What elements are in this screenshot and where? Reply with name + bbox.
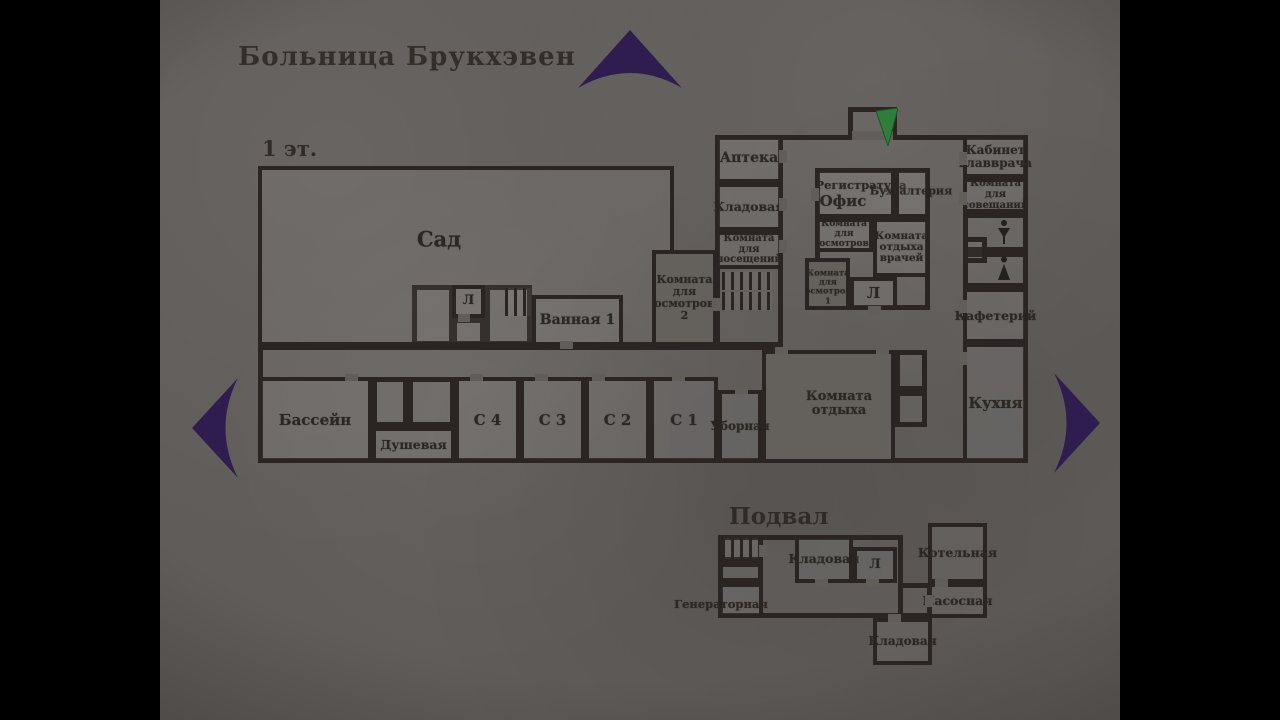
wc-female-icon bbox=[997, 220, 1011, 245]
door-gap bbox=[759, 545, 767, 557]
closet-2 bbox=[895, 391, 927, 427]
shower-closet-1 bbox=[372, 377, 408, 427]
room-meeting-room: Комната для совещаний bbox=[963, 178, 1028, 213]
basement-understair bbox=[718, 562, 763, 583]
room-label-bathroom-1: Ванная 1 bbox=[540, 313, 615, 328]
door-gap bbox=[535, 374, 548, 381]
door-gap bbox=[959, 192, 967, 205]
door-gap bbox=[959, 300, 967, 313]
door-gap bbox=[935, 579, 948, 587]
shower-closet-2 bbox=[408, 377, 455, 427]
door-gap bbox=[868, 306, 881, 314]
door-gap bbox=[592, 374, 605, 381]
door-gap bbox=[458, 314, 470, 322]
room-cafeteria: Кафетерий bbox=[963, 288, 1028, 343]
room-bathroom-1: Ванная 1 bbox=[532, 295, 623, 346]
door-gap bbox=[735, 387, 748, 394]
door-gap bbox=[779, 198, 787, 211]
floating-label: Офис bbox=[820, 192, 867, 210]
room-label-doctors-lounge: Комната отдыха врачей bbox=[875, 231, 928, 265]
stairs-hatching bbox=[722, 292, 772, 310]
closet-1 bbox=[895, 350, 927, 391]
room-label-ward-c4: С 4 bbox=[474, 412, 502, 428]
stairs-hatching bbox=[722, 538, 760, 559]
room-generator-room: Генераторная bbox=[718, 583, 763, 618]
room-label-elevator-2: Л bbox=[867, 285, 880, 301]
room-storeroom-b2: Кладовая bbox=[873, 618, 932, 665]
room-shower: Душевая bbox=[372, 427, 455, 463]
room-doctors-lounge: Комната отдыха врачей bbox=[873, 218, 930, 277]
door-gap bbox=[470, 374, 483, 381]
game-screen: Больница Брукхэвен 1 эт. Подвал СадЛВанн… bbox=[0, 0, 1280, 720]
room-pump-room: Насосная bbox=[928, 583, 987, 618]
room-label-generator-room: Генераторная bbox=[674, 598, 768, 610]
stairs-hatching bbox=[505, 288, 531, 316]
room-label-pump-room: Насосная bbox=[923, 594, 993, 608]
door-gap bbox=[345, 374, 358, 381]
room-label-exam-room-mid: Комната для осмотров bbox=[819, 220, 868, 249]
wc-male-icon bbox=[997, 256, 1011, 281]
room-label-meeting-room: Комната для совещаний bbox=[963, 179, 1029, 211]
room-visiting-room: Комната для посещений bbox=[715, 231, 783, 269]
room-lounge: Комната отдыха bbox=[762, 350, 895, 463]
map-arrow-left[interactable] bbox=[192, 378, 238, 478]
room-ward-c3: С 3 bbox=[520, 377, 585, 463]
room-label-lounge: Комната отдыха bbox=[806, 390, 872, 418]
map-arrow-up[interactable] bbox=[578, 30, 682, 88]
room-head-doctor-office: Кабинет главврача bbox=[963, 135, 1028, 178]
door-gap bbox=[876, 347, 889, 354]
door-gap bbox=[560, 341, 573, 349]
door-gap bbox=[811, 188, 819, 201]
door-gap bbox=[775, 347, 788, 354]
door-gap bbox=[815, 579, 828, 587]
room-boiler-room: Котельная bbox=[928, 523, 987, 583]
door-gap bbox=[959, 152, 967, 165]
wc-niche bbox=[963, 237, 987, 263]
room-storeroom-b1: Кладовая bbox=[795, 535, 853, 583]
room-pharmacy: Аптека bbox=[715, 135, 783, 183]
room-storeroom-1f: Кладовая bbox=[715, 183, 783, 231]
room-label-exam-room-1: Комната для осмотров 1 bbox=[805, 270, 852, 307]
door-gap bbox=[779, 240, 787, 253]
stairs-hatching bbox=[722, 272, 772, 290]
door-gap bbox=[779, 150, 787, 163]
door-gap bbox=[888, 614, 901, 622]
door-gap bbox=[712, 298, 720, 311]
room-label-restroom: Уборная bbox=[710, 420, 770, 433]
basement-label: Подвал bbox=[729, 503, 829, 530]
room-elevator-b: Л bbox=[853, 547, 897, 583]
room-pool: Бассейн bbox=[258, 377, 372, 463]
room-label-boiler-room: Котельная bbox=[918, 546, 997, 560]
door-gap bbox=[959, 352, 967, 365]
map-title: Больница Брукхэвен bbox=[238, 42, 576, 72]
room-label-pool: Бассейн bbox=[279, 412, 351, 428]
room-kitchen: Кухня bbox=[963, 343, 1028, 463]
room-label-ward-c1: С 1 bbox=[670, 412, 698, 428]
room-label-elevator-b: Л bbox=[869, 558, 881, 572]
room-label-shower: Душевая bbox=[380, 438, 447, 452]
room-ward-c2: С 2 bbox=[585, 377, 650, 463]
room-exam-room-mid: Комната для осмотров bbox=[815, 218, 873, 252]
room-label-ward-c3: С 3 bbox=[539, 412, 567, 428]
floating-label: Бухгалтерия bbox=[870, 185, 952, 198]
map-arrow-right[interactable] bbox=[1054, 373, 1100, 473]
room-label-storeroom-b1: Кладовая bbox=[789, 552, 860, 566]
room-restroom: Уборная bbox=[718, 390, 762, 463]
room-label-head-doctor-office: Кабинет главврача bbox=[959, 144, 1032, 170]
room-label-storeroom-b2: Кладовая bbox=[868, 635, 936, 648]
player-position-arrow bbox=[876, 108, 898, 146]
room-exam-room-2: Комната для осмотров 2 bbox=[652, 250, 717, 346]
room-label-ward-c2: С 2 bbox=[604, 412, 632, 428]
room-label-kitchen: Кухня bbox=[968, 395, 1022, 411]
room-label-pharmacy: Аптека bbox=[720, 151, 778, 166]
room-label-elevator-1: Л bbox=[463, 294, 475, 308]
room-label-storeroom-1f: Кладовая bbox=[714, 200, 785, 214]
room-ward-c1: С 1 bbox=[650, 377, 718, 463]
room-label-visiting-room: Комната для посещений bbox=[716, 234, 782, 266]
floor1-label: 1 эт. bbox=[262, 136, 317, 161]
room-exam-room-1: Комната для осмотров 1 bbox=[805, 258, 850, 310]
room-ward-c4: С 4 bbox=[455, 377, 520, 463]
door-gap bbox=[925, 595, 933, 607]
room-label-exam-room-2: Комната для осмотров 2 bbox=[654, 274, 714, 322]
door-gap bbox=[672, 374, 685, 381]
room-label-garden: Сад bbox=[417, 229, 461, 252]
door-gap bbox=[866, 579, 879, 587]
